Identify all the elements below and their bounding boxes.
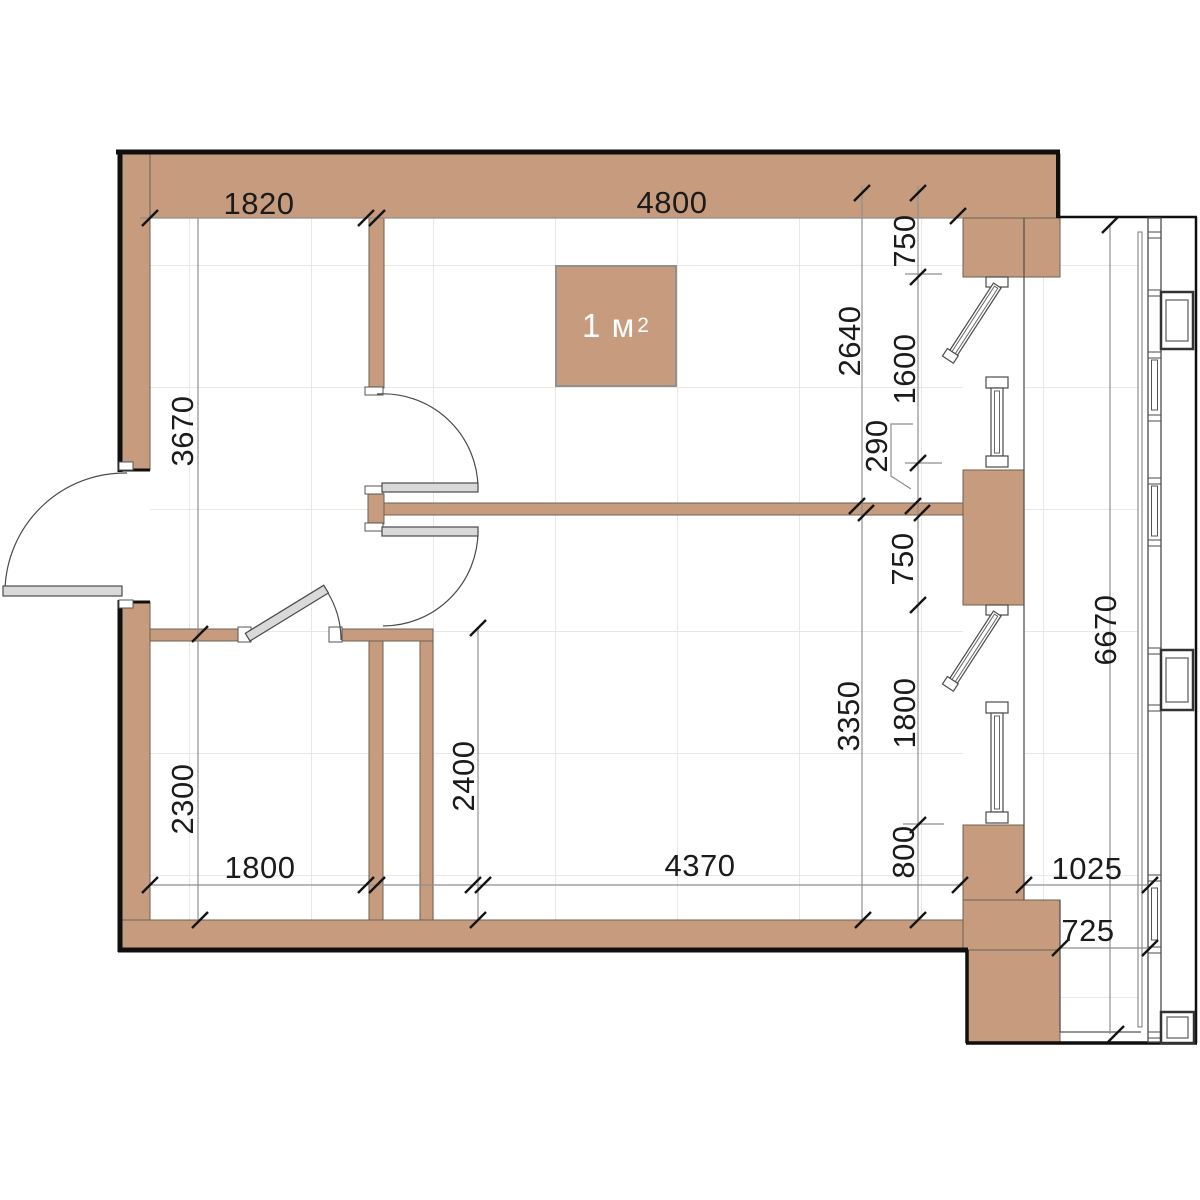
wall-left-lower xyxy=(122,602,150,950)
bathroom-door xyxy=(245,585,341,641)
wall-central-stub xyxy=(368,494,384,524)
partition-top-room xyxy=(369,218,384,388)
wall-below-balcony xyxy=(966,950,1060,1043)
wall-top xyxy=(122,154,1060,218)
window-bottom-casement xyxy=(942,609,1001,691)
wall-pier-middle xyxy=(963,470,1024,605)
wall-duct-right xyxy=(420,641,433,920)
room-door-top xyxy=(377,394,478,492)
floor-plan-canvas: 1 м2 1820 4800 3670 2300 1800 2400 4370 … xyxy=(0,0,1200,1200)
window-top xyxy=(942,277,1008,467)
door-jambs xyxy=(119,387,383,642)
window-bottom xyxy=(942,605,1008,823)
wall-pier-bottom-step xyxy=(963,900,1060,950)
entry-door-leaf xyxy=(3,586,122,596)
room-door-top-leaf xyxy=(382,483,478,492)
leader-290 xyxy=(891,424,913,489)
floor-plan-drawing xyxy=(0,0,1200,1200)
window-bottom-fixed xyxy=(991,713,1003,812)
wall-duct-left xyxy=(369,641,383,920)
wall-bottom xyxy=(122,920,968,950)
wall-corner-top-right xyxy=(963,218,1060,277)
area-badge: 1 м2 xyxy=(555,265,677,387)
bathroom-door-leaf xyxy=(245,585,328,641)
wall-central xyxy=(369,503,963,515)
wall-left-upper xyxy=(122,154,150,470)
room-door-bottom-leaf xyxy=(382,527,478,536)
window-top-fixed xyxy=(991,388,1003,456)
balcony-glazing xyxy=(1148,218,1194,1043)
room-door-bottom xyxy=(382,527,478,626)
wall-pier-bottom xyxy=(963,825,1024,902)
wall-bathroom-right xyxy=(337,629,433,641)
entry-door xyxy=(3,473,127,596)
window-top-casement xyxy=(942,281,1001,363)
area-value: 1 м xyxy=(582,307,635,345)
balcony-sill-line xyxy=(1138,232,1142,1027)
